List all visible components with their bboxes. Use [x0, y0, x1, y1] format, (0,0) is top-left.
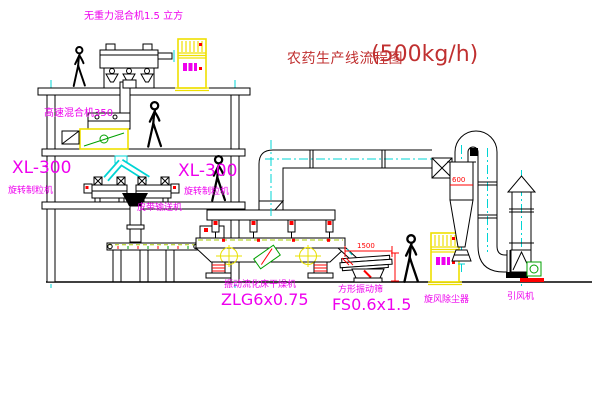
dimension-screen-length: 1500: [357, 243, 375, 250]
label-screen-name: 方形振动筛: [338, 286, 383, 295]
label-screen-model: FS0.6x1.5: [332, 297, 411, 313]
belt-conveyor: [107, 243, 200, 282]
induced-draft-fan: [506, 250, 544, 282]
label-granulator-left-name: 旋转制粒机: [8, 187, 53, 196]
label-gravity-mixer: 无重力混合机1.5 立方: [84, 12, 183, 22]
vibrating-screen: [340, 246, 399, 282]
granulator-left: [84, 177, 127, 202]
gravity-free-mixer: [100, 44, 174, 114]
person-second-floor: [148, 102, 161, 146]
down-duct: [478, 148, 510, 275]
label-cyclone: 旋风除尘器: [424, 296, 469, 305]
dimension-cyclone-width: 600: [452, 177, 465, 184]
label-dryer-name: 振动流化床干燥机: [224, 281, 296, 290]
label-granulator-right-model: XL-300: [178, 163, 237, 180]
label-fan: 引风机: [507, 293, 534, 302]
label-granulator-left-model: XL-300: [12, 160, 71, 177]
exhaust-duct: [259, 140, 452, 216]
y-chute: [106, 156, 148, 179]
label-belt-conveyor: 皮带输送机: [137, 204, 182, 213]
label-dryer-model: ZLG6x0.75: [221, 292, 309, 308]
cad-flow-diagram: 无重力混合机1.5 立方 农药生产线流程图 (500kg/h) 高速混合机350…: [0, 0, 600, 403]
fluid-bed-dryer: [196, 210, 358, 278]
diagram-title-capacity: (500kg/h): [371, 44, 478, 66]
person-ground: [404, 235, 417, 282]
label-granulator-right-name: 旋转制粒机: [184, 188, 229, 197]
label-high-speed-mixer: 高速混合机350: [44, 109, 113, 119]
person-top-floor: [74, 47, 85, 86]
control-cabinet-top: [175, 39, 209, 91]
